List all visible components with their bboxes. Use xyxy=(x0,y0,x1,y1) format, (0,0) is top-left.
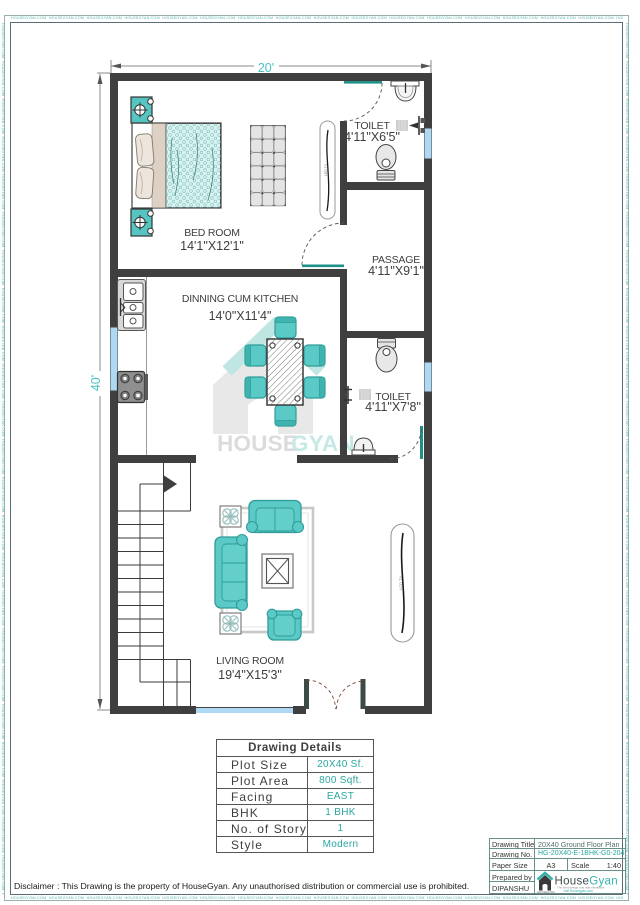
svg-text:20': 20' xyxy=(258,61,274,75)
svg-text:BED ROOM: BED ROOM xyxy=(184,227,240,239)
svg-text:14'1"X12'1": 14'1"X12'1" xyxy=(180,239,244,253)
svg-text:LED TV: LED TV xyxy=(324,163,328,176)
svg-text:HOUSE: HOUSE xyxy=(217,431,298,456)
svg-text:visit Housegyan.com: visit Housegyan.com xyxy=(564,889,594,893)
svg-text:14'0"X11'4": 14'0"X11'4" xyxy=(209,309,272,323)
svg-text:4'11"X6'5": 4'11"X6'5" xyxy=(344,130,400,144)
svg-text:4'11"X7'8": 4'11"X7'8" xyxy=(365,400,421,414)
svg-text:DINNING CUM KITCHEN: DINNING CUM KITCHEN xyxy=(182,293,298,305)
svg-text:LIVING ROOM: LIVING ROOM xyxy=(216,655,284,667)
svg-text:19'4"X15'3": 19'4"X15'3" xyxy=(218,668,282,682)
svg-text:HOUSEGYAN: HOUSEGYAN xyxy=(537,890,555,893)
svg-text:40': 40' xyxy=(89,375,103,391)
svg-text:4'11"X9'1": 4'11"X9'1" xyxy=(368,264,424,278)
svg-text:LCD TV: LCD TV xyxy=(398,576,403,590)
